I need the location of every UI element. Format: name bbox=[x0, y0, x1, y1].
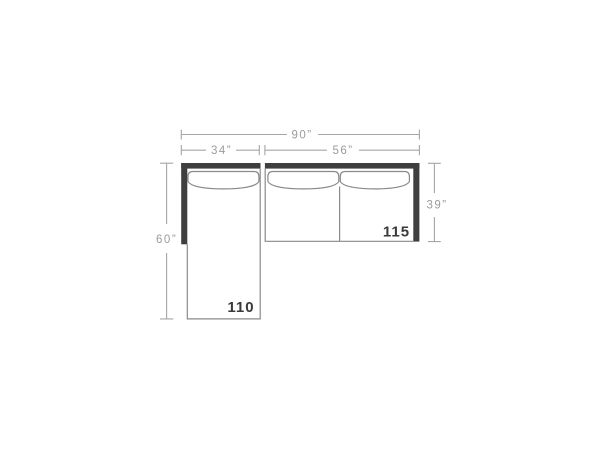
middle-back-cushion bbox=[268, 172, 339, 189]
dimension-chaise-length: 60” bbox=[156, 163, 177, 319]
chaise-back-cushion bbox=[188, 172, 259, 189]
chaise-outline bbox=[187, 169, 260, 319]
back-cushions bbox=[188, 172, 409, 189]
chaise-piece-number: 110 bbox=[227, 299, 254, 316]
sofa-piece-number: 115 bbox=[383, 224, 410, 241]
frame-back-sofa-segment bbox=[265, 163, 420, 169]
sofa-width-label: 56” bbox=[332, 145, 353, 157]
chaise-width-label: 34” bbox=[211, 145, 232, 157]
dimension-sofa-depth: 39” bbox=[426, 163, 447, 241]
frame-back-chaise-segment bbox=[181, 163, 260, 169]
chaise-length-label: 60” bbox=[156, 234, 177, 246]
dimension-sofa-width: 56” bbox=[265, 145, 420, 157]
sofa-dimension-diagram: 90” 34” 56” 60” 39” 110 115 bbox=[0, 0, 600, 450]
frame-right-arm bbox=[413, 163, 419, 242]
sofa-depth-label: 39” bbox=[426, 200, 447, 212]
dimension-overall-width: 90” bbox=[181, 129, 419, 141]
overall-width-label: 90” bbox=[291, 129, 312, 141]
right-back-cushion bbox=[340, 172, 409, 189]
diagram-canvas: 90” 34” 56” 60” 39” 110 115 bbox=[0, 0, 600, 450]
dimension-chaise-width: 34” bbox=[181, 145, 259, 157]
frame-left-arm bbox=[181, 163, 187, 244]
